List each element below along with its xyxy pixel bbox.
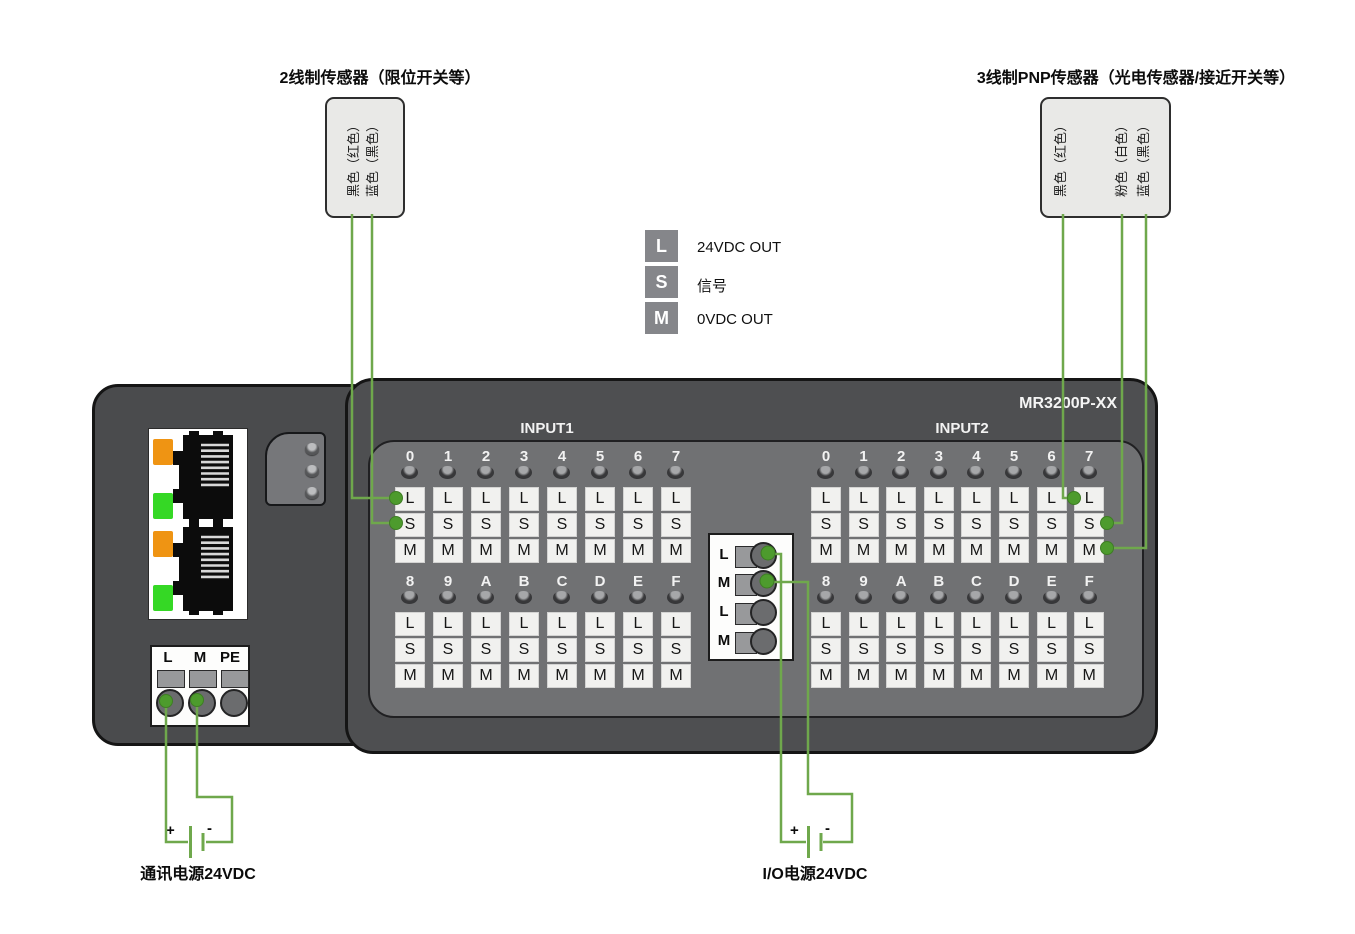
channel-number: A	[886, 573, 916, 590]
terminal-cell-M: M	[999, 664, 1029, 688]
terminal-cell-L: L	[849, 487, 879, 511]
input1-label: INPUT1	[497, 420, 597, 437]
channel-led	[1005, 466, 1022, 479]
status-led-3	[305, 487, 319, 499]
channel-number: 6	[623, 448, 653, 465]
terminal-label-L: L	[158, 649, 178, 666]
terminal-cell-S: S	[661, 513, 691, 537]
channel-led	[439, 591, 456, 604]
channel-number: 9	[433, 573, 463, 590]
channel-2: 2LSM	[886, 448, 916, 566]
channel-F: FLSM	[661, 573, 691, 691]
terminal-cell-M: M	[661, 664, 691, 688]
input2-label: INPUT2	[912, 420, 1012, 437]
terminal-cell-L: L	[961, 487, 991, 511]
terminal-label-M: M	[190, 649, 210, 666]
center-label-M1: M	[714, 574, 734, 591]
io-battery-minus: -	[825, 820, 830, 837]
terminal-cell-L: L	[585, 487, 615, 511]
channel-4: 4LSM	[547, 448, 577, 566]
two-wire-sensor-title: 2线制传感器（限位开关等）	[250, 64, 510, 88]
channel-led	[967, 466, 984, 479]
channel-3: 3LSM	[509, 448, 539, 566]
terminal-cell-M: M	[471, 539, 501, 563]
legend-key-S: S	[645, 266, 678, 298]
port1-orange-led	[153, 439, 173, 465]
terminal-cell-S: S	[585, 638, 615, 662]
terminal-cell-L: L	[886, 487, 916, 511]
center-hole-4	[750, 628, 777, 655]
terminal-cell-L: L	[623, 487, 653, 511]
channel-number: 9	[849, 573, 879, 590]
terminal-cell-L: L	[811, 487, 841, 511]
terminal-cell-L: L	[433, 487, 463, 511]
terminal-hole-M	[188, 689, 216, 717]
channel-number: 1	[849, 448, 879, 465]
channel-B: BLSM	[924, 573, 954, 691]
terminal-cell-L: L	[547, 487, 577, 511]
terminal-cell-S: S	[471, 638, 501, 662]
terminal-cell-M: M	[395, 664, 425, 688]
channel-led	[477, 591, 494, 604]
terminal-cell-M: M	[661, 539, 691, 563]
channel-7: 7LSM	[661, 448, 691, 566]
three-wire-sensor-title: 3线制PNP传感器（光电传感器/接近开关等）	[955, 64, 1317, 88]
comm-power-terminal: L M PE	[150, 645, 250, 727]
channel-led	[629, 466, 646, 479]
model-number: MR3200P-XX	[917, 395, 1117, 413]
channel-D: DLSM	[999, 573, 1029, 691]
channel-led	[439, 466, 456, 479]
channel-number: C	[961, 573, 991, 590]
terminal-cell-S: S	[999, 638, 1029, 662]
terminal-cell-M: M	[924, 539, 954, 563]
channel-C: CLSM	[961, 573, 991, 691]
channel-1: 1LSM	[433, 448, 463, 566]
channel-number: B	[509, 573, 539, 590]
terminal-cell-S: S	[961, 638, 991, 662]
clamp-L	[157, 670, 185, 688]
terminal-cell-L: L	[661, 612, 691, 636]
channel-0: 0LSM	[811, 448, 841, 566]
channel-F: FLSM	[1074, 573, 1104, 691]
terminal-cell-L: L	[547, 612, 577, 636]
legend-desc-L: 24VDC OUT	[697, 239, 781, 256]
channel-number: E	[623, 573, 653, 590]
channel-led	[817, 466, 834, 479]
terminal-cell-M: M	[961, 664, 991, 688]
terminal-cell-M: M	[1037, 664, 1067, 688]
channel-number: E	[1037, 573, 1067, 590]
center-hole-2	[750, 570, 777, 597]
terminal-cell-L: L	[395, 487, 425, 511]
channel-led	[1080, 466, 1097, 479]
two-wire-label-blue-black: 蓝色（黑色）	[364, 103, 382, 213]
channel-led	[1005, 591, 1022, 604]
terminal-cell-M: M	[961, 539, 991, 563]
terminal-cell-S: S	[585, 513, 615, 537]
port2-orange-led	[153, 531, 173, 557]
terminal-cell-S: S	[811, 638, 841, 662]
channel-led	[553, 591, 570, 604]
two-wire-label-black-red: 黑色（红色）	[345, 103, 363, 213]
channel-E: ELSM	[623, 573, 653, 691]
center-hole-3	[750, 599, 777, 626]
channel-9: 9LSM	[849, 573, 879, 691]
channel-5: 5LSM	[999, 448, 1029, 566]
terminal-cell-M: M	[509, 539, 539, 563]
terminal-cell-S: S	[623, 513, 653, 537]
terminal-cell-L: L	[509, 612, 539, 636]
channel-0: 0LSM	[395, 448, 425, 566]
center-label-L2: L	[714, 603, 734, 620]
terminal-cell-L: L	[433, 612, 463, 636]
terminal-cell-M: M	[623, 664, 653, 688]
terminal-cell-L: L	[585, 612, 615, 636]
terminal-cell-M: M	[433, 539, 463, 563]
terminal-cell-S: S	[395, 513, 425, 537]
terminal-cell-M: M	[585, 539, 615, 563]
terminal-cell-S: S	[509, 513, 539, 537]
channel-number: 2	[471, 448, 501, 465]
terminal-cell-L: L	[1074, 612, 1104, 636]
channel-A: ALSM	[886, 573, 916, 691]
terminal-cell-S: S	[999, 513, 1029, 537]
terminal-cell-L: L	[961, 612, 991, 636]
channel-led	[817, 591, 834, 604]
status-led-1	[305, 443, 319, 455]
terminal-cell-M: M	[924, 664, 954, 688]
channel-number: 5	[999, 448, 1029, 465]
channel-number: B	[924, 573, 954, 590]
channel-led	[401, 466, 418, 479]
terminal-cell-S: S	[1074, 513, 1104, 537]
channel-number: 8	[395, 573, 425, 590]
channel-number: D	[585, 573, 615, 590]
terminal-cell-M: M	[999, 539, 1029, 563]
terminal-cell-S: S	[547, 513, 577, 537]
terminal-cell-L: L	[811, 612, 841, 636]
port2-green-led	[153, 585, 173, 611]
center-label-L1: L	[714, 546, 734, 563]
channel-led	[1043, 591, 1060, 604]
terminal-cell-L: L	[924, 487, 954, 511]
terminal-cell-L: L	[1037, 612, 1067, 636]
channel-led	[477, 466, 494, 479]
io-power-terminal-block: L M L M	[708, 533, 794, 661]
terminal-cell-M: M	[811, 539, 841, 563]
terminal-cell-M: M	[509, 664, 539, 688]
channel-4: 4LSM	[961, 448, 991, 566]
channel-number: C	[547, 573, 577, 590]
three-wire-label-blue-black: 蓝色（黑色）	[1135, 103, 1153, 213]
channel-number: 0	[811, 448, 841, 465]
channel-led	[667, 466, 684, 479]
io-battery-plus: +	[790, 822, 799, 839]
channel-led	[401, 591, 418, 604]
channel-number: 3	[509, 448, 539, 465]
comm-power-label: 通讯电源24VDC	[118, 860, 278, 884]
channel-5: 5LSM	[585, 448, 615, 566]
legend-key-L: L	[645, 230, 678, 262]
channel-number: F	[1074, 573, 1104, 590]
channel-number: F	[661, 573, 691, 590]
terminal-cell-M: M	[1074, 539, 1104, 563]
rj45-port-2-icon	[149, 523, 245, 615]
terminal-cell-L: L	[509, 487, 539, 511]
channel-8: 8LSM	[395, 573, 425, 691]
channel-6: 6LSM	[1037, 448, 1067, 566]
channel-number: 5	[585, 448, 615, 465]
channel-number: D	[999, 573, 1029, 590]
channel-2: 2LSM	[471, 448, 501, 566]
terminal-cell-S: S	[886, 638, 916, 662]
terminal-cell-L: L	[999, 487, 1029, 511]
channel-number: 7	[1074, 448, 1104, 465]
channel-led	[930, 466, 947, 479]
channel-number: 8	[811, 573, 841, 590]
channel-number: 4	[547, 448, 577, 465]
terminal-hole-PE	[220, 689, 248, 717]
channel-number: 0	[395, 448, 425, 465]
channel-led	[930, 591, 947, 604]
terminal-cell-L: L	[623, 612, 653, 636]
terminal-cell-L: L	[1074, 487, 1104, 511]
channel-led	[967, 591, 984, 604]
channel-number: 7	[661, 448, 691, 465]
channel-number: 3	[924, 448, 954, 465]
terminal-cell-M: M	[1074, 664, 1104, 688]
center-label-M2: M	[714, 632, 734, 649]
terminal-cell-M: M	[623, 539, 653, 563]
terminal-cell-M: M	[886, 664, 916, 688]
wiring-diagram: 2线制传感器（限位开关等） 3线制PNP传感器（光电传感器/接近开关等） 黑色（…	[0, 0, 1355, 934]
terminal-cell-M: M	[1037, 539, 1067, 563]
rj45-port-1-icon	[149, 431, 245, 523]
clamp-PE	[221, 670, 249, 688]
port1-green-led	[153, 493, 173, 519]
legend-key-M: M	[645, 302, 678, 334]
terminal-cell-S: S	[471, 513, 501, 537]
channel-led	[515, 591, 532, 604]
legend-desc-M: 0VDC OUT	[697, 311, 773, 328]
terminal-cell-L: L	[924, 612, 954, 636]
channel-number: A	[471, 573, 501, 590]
terminal-cell-L: L	[471, 487, 501, 511]
terminal-cell-M: M	[811, 664, 841, 688]
channel-led	[629, 591, 646, 604]
channel-E: ELSM	[1037, 573, 1067, 691]
terminal-hole-L	[156, 689, 184, 717]
terminal-cell-M: M	[395, 539, 425, 563]
terminal-cell-M: M	[849, 539, 879, 563]
terminal-cell-M: M	[547, 664, 577, 688]
comm-battery-plus: +	[166, 822, 175, 839]
terminal-cell-L: L	[999, 612, 1029, 636]
ethernet-panel	[148, 428, 248, 620]
comm-battery-minus: -	[207, 820, 212, 837]
terminal-cell-S: S	[924, 513, 954, 537]
terminal-cell-M: M	[547, 539, 577, 563]
terminal-cell-L: L	[1037, 487, 1067, 511]
terminal-cell-M: M	[849, 664, 879, 688]
channel-led	[892, 466, 909, 479]
terminal-cell-M: M	[585, 664, 615, 688]
channel-C: CLSM	[547, 573, 577, 691]
channel-led	[591, 591, 608, 604]
terminal-cell-L: L	[849, 612, 879, 636]
channel-led	[553, 466, 570, 479]
terminal-cell-S: S	[661, 638, 691, 662]
terminal-cell-S: S	[1037, 513, 1067, 537]
terminal-cell-M: M	[471, 664, 501, 688]
status-button-panel	[265, 432, 326, 506]
center-hole-1	[750, 542, 777, 569]
terminal-cell-L: L	[886, 612, 916, 636]
terminal-cell-S: S	[509, 638, 539, 662]
three-wire-label-pink-white: 粉色（白色）	[1113, 103, 1131, 213]
terminal-cell-S: S	[961, 513, 991, 537]
terminal-cell-S: S	[924, 638, 954, 662]
terminal-cell-S: S	[623, 638, 653, 662]
terminal-cell-L: L	[395, 612, 425, 636]
terminal-cell-L: L	[661, 487, 691, 511]
terminal-cell-L: L	[471, 612, 501, 636]
channel-B: BLSM	[509, 573, 539, 691]
terminal-cell-S: S	[849, 513, 879, 537]
channel-led	[591, 466, 608, 479]
channel-number: 1	[433, 448, 463, 465]
terminal-cell-S: S	[811, 513, 841, 537]
channel-led	[515, 466, 532, 479]
terminal-cell-S: S	[395, 638, 425, 662]
channel-3: 3LSM	[924, 448, 954, 566]
channel-number: 4	[961, 448, 991, 465]
terminal-cell-S: S	[849, 638, 879, 662]
terminal-cell-S: S	[1074, 638, 1104, 662]
channel-9: 9LSM	[433, 573, 463, 691]
terminal-label-PE: PE	[216, 649, 244, 666]
terminal-cell-S: S	[1037, 638, 1067, 662]
three-wire-label-black-red: 黑色（红色）	[1052, 103, 1070, 213]
terminal-cell-S: S	[547, 638, 577, 662]
channel-A: ALSM	[471, 573, 501, 691]
channel-number: 2	[886, 448, 916, 465]
channel-led	[667, 591, 684, 604]
legend-desc-S: 信号	[697, 275, 727, 296]
channel-led	[855, 466, 872, 479]
terminal-cell-M: M	[886, 539, 916, 563]
terminal-cell-S: S	[433, 638, 463, 662]
terminal-cell-S: S	[433, 513, 463, 537]
channel-D: DLSM	[585, 573, 615, 691]
terminal-cell-M: M	[433, 664, 463, 688]
channel-led	[1043, 466, 1060, 479]
io-power-label: I/O电源24VDC	[735, 860, 895, 884]
channel-7: 7LSM	[1074, 448, 1104, 566]
clamp-M	[189, 670, 217, 688]
terminal-cell-S: S	[886, 513, 916, 537]
channel-number: 6	[1037, 448, 1067, 465]
channel-led	[1080, 591, 1097, 604]
channel-6: 6LSM	[623, 448, 653, 566]
channel-1: 1LSM	[849, 448, 879, 566]
channel-8: 8LSM	[811, 573, 841, 691]
channel-led	[855, 591, 872, 604]
status-led-2	[305, 465, 319, 477]
channel-led	[892, 591, 909, 604]
